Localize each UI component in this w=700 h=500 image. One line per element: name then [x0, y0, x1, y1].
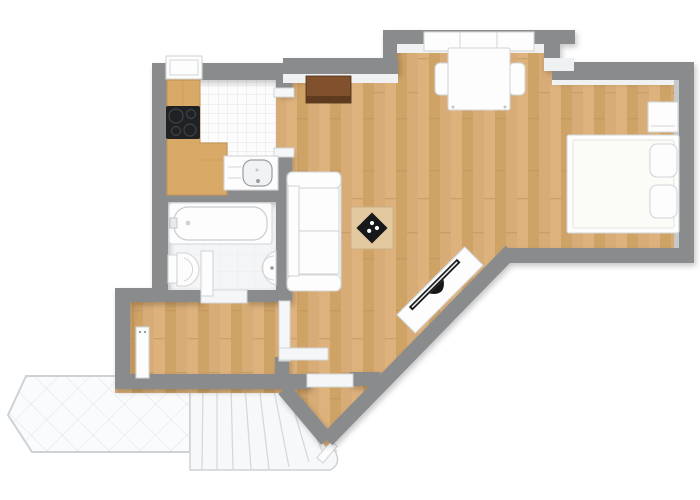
dining-chair-right	[509, 63, 525, 95]
floorplan-svg	[0, 0, 700, 500]
kitchen-window	[166, 56, 202, 79]
bedroom-top-wall-face	[552, 80, 679, 85]
bathtub	[169, 203, 272, 244]
kitchen-sink	[224, 156, 278, 190]
bed	[567, 135, 679, 233]
dining-table	[448, 48, 510, 110]
toilet	[168, 253, 199, 286]
living-top-wall	[283, 58, 398, 74]
bathroom-door-leaf	[201, 251, 213, 296]
sofa-backrest	[288, 186, 299, 276]
sofa-cushion	[299, 231, 339, 274]
bath-bottom-wall-left	[152, 290, 201, 302]
hall-left-wall	[115, 288, 130, 389]
alcove-step-face	[544, 58, 574, 71]
sofa-cushion	[299, 188, 339, 231]
sofa	[287, 172, 341, 291]
nightstand	[648, 102, 678, 132]
pillow	[650, 185, 677, 218]
right-wall	[679, 62, 694, 263]
sofa-armrest-bottom	[287, 275, 341, 291]
kitchen-bath-left-wall	[152, 63, 168, 302]
tub-drain	[186, 221, 191, 226]
pillow	[650, 144, 677, 177]
entrance-threshold	[307, 374, 353, 387]
tub-faucet	[170, 218, 177, 228]
entry-side-wall	[350, 372, 380, 386]
radiator-door-leaf	[136, 327, 149, 378]
floorplan-image	[0, 0, 700, 500]
kitchen-doorjamb-top	[274, 88, 294, 97]
coffee-table	[351, 207, 393, 249]
bedroom-bottom-wall	[504, 248, 694, 263]
sideboard	[306, 76, 351, 103]
cooktop	[166, 106, 200, 139]
